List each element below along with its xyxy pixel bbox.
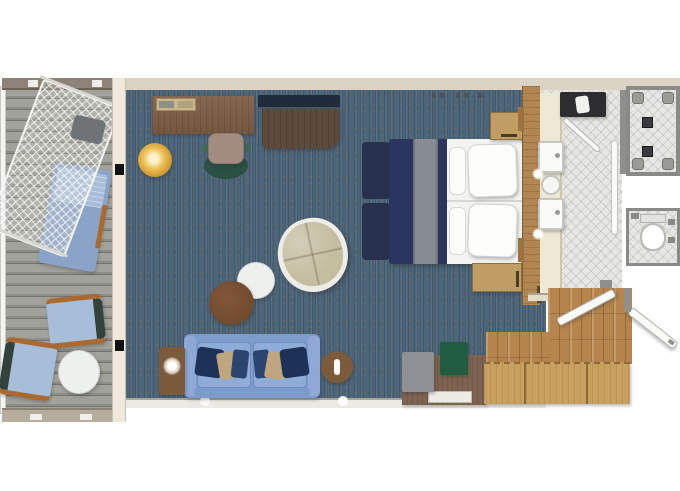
wardrobe-wall [522,86,540,305]
bed-pillow [467,203,518,258]
bedspread-navy [438,139,447,264]
desk-chair-seat [208,133,244,164]
closet-divider [586,364,588,404]
wc-fixture [668,237,675,243]
nightstand-handle [516,271,519,287]
table-lamp [334,359,340,375]
balcony-wall-bottom [2,408,124,422]
sofa-arm [308,336,320,396]
foot-bench-cushion [362,142,390,199]
room-balcony [0,78,126,422]
toilet-tank [640,214,666,223]
wardrobe-tab [518,107,524,131]
tray-item [178,101,193,108]
balcony-table [58,350,100,394]
bed-pillow-small [449,147,466,195]
shower-fixture [662,92,674,104]
balcony-divider-wall [112,78,126,422]
deck-chair [46,293,107,349]
tv [258,95,340,109]
hammock-pillow [70,114,107,145]
shower-fixture [632,158,644,170]
nightstand-bottom [472,263,522,292]
dresser-gray-item [402,352,434,392]
balcony-wall-notch [28,80,38,87]
table-lamp [163,357,181,375]
vanity-bowl [541,175,561,195]
toilet-bowl [640,223,666,251]
wardrobe-closets [484,362,630,404]
shower-drain [642,117,653,128]
linen-seam [447,200,522,202]
gold-ottoman [138,143,172,177]
dresser-stool-green [440,342,468,375]
sofa [184,334,320,398]
curtain-mark [338,396,348,406]
wc-fixture [668,219,675,225]
bathtub [560,92,606,117]
foot-bench-cushion [362,203,390,260]
shower-drain [642,146,653,157]
room-shower [626,86,680,176]
balcony-wall-notch [30,414,42,420]
side-table-right [321,351,353,383]
wall-mark [478,93,482,98]
dresser-tray [428,391,472,403]
vanity-sink [538,141,564,173]
bedspread-navy [389,139,413,264]
nightstand-handle [501,134,517,137]
shower-fixture [662,158,674,170]
wall-mark [464,93,468,98]
door-track-stop [115,340,124,351]
vanity-light [532,168,544,180]
closet-divider [524,364,526,404]
entry-door [627,307,678,350]
door-handle [668,339,675,346]
room-wc [626,208,680,266]
bathroom-door-open [611,140,618,235]
sofa-front-edge [194,388,310,396]
wardrobe-tab [518,238,524,262]
desk [152,96,254,134]
wall-mark [456,93,460,98]
desk-trays [156,98,196,111]
bed-pillow-small [449,207,466,255]
tray-item [159,101,174,108]
entry-wall-stub [624,288,631,312]
faucet [555,210,560,215]
lounge-chair-cushion [277,216,349,291]
door-track-stop [115,164,124,175]
balcony-wall-notch [92,80,102,87]
coffee-table-brown [209,281,254,325]
wall-mark [432,93,436,98]
sofa-pillow-navy-small [231,349,250,379]
vanity-light [532,228,544,240]
wall-mark [440,93,444,98]
tv-cabinet [262,109,340,149]
balcony-wall-notch [80,414,92,420]
entry-floor [486,332,550,364]
wc-fixture [631,213,639,219]
shower-fixture [632,92,644,104]
bath-towel [575,95,590,114]
faucet [555,153,560,158]
deck-chair [0,336,58,401]
sofa-pillow-navy [279,346,310,378]
bedspread-stripe [413,139,438,264]
sofa-arm [184,336,196,396]
vanity-sink [538,198,564,230]
side-table-left [159,347,185,395]
suite-floor-plan [0,0,680,491]
double-bed [389,139,522,264]
bed-pillow [467,143,518,198]
